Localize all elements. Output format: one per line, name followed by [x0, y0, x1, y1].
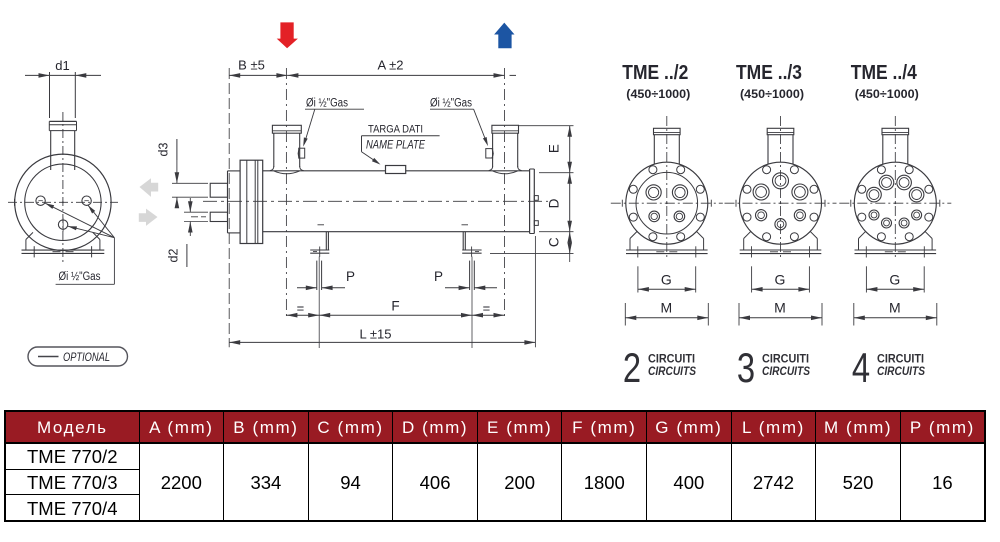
svg-text:P: P: [346, 269, 355, 284]
svg-text:Øi ½"Gas: Øi ½"Gas: [59, 271, 101, 283]
svg-text:G: G: [661, 272, 672, 288]
svg-text:TARGA DATI: TARGA DATI: [368, 124, 423, 136]
svg-text:A ±2: A ±2: [378, 58, 404, 73]
svg-text:=: =: [297, 301, 305, 316]
svg-text:TME ../2: TME ../2: [622, 62, 688, 84]
svg-text:(450÷1000): (450÷1000): [855, 87, 919, 101]
svg-text:TME ../3: TME ../3: [736, 62, 802, 84]
svg-text:(450÷1000): (450÷1000): [626, 87, 690, 101]
svg-text:=: =: [483, 301, 491, 316]
svg-text:P: P: [434, 269, 443, 284]
svg-text:D: D: [547, 198, 562, 208]
svg-text:G: G: [775, 272, 786, 288]
svg-text:CIRCUITI: CIRCUITI: [648, 354, 695, 366]
svg-text:d3: d3: [157, 143, 171, 157]
svg-text:TME ../4: TME ../4: [851, 62, 918, 84]
svg-text:F: F: [391, 299, 399, 314]
svg-text:(450÷1000): (450÷1000): [740, 87, 804, 101]
svg-text:E: E: [547, 144, 562, 153]
svg-text:CIRCUITS: CIRCUITS: [648, 366, 696, 378]
svg-text:2: 2: [623, 344, 641, 391]
svg-text:CIRCUITS: CIRCUITS: [762, 366, 810, 378]
svg-text:C: C: [547, 237, 562, 247]
svg-text:B ±5: B ±5: [238, 58, 265, 73]
svg-text:NAME PLATE: NAME PLATE: [366, 140, 425, 152]
svg-text:CIRCUITI: CIRCUITI: [877, 354, 924, 366]
svg-text:G: G: [889, 272, 900, 288]
svg-text:Øi ½"Gas: Øi ½"Gas: [306, 97, 348, 109]
svg-text:OPTIONAL: OPTIONAL: [63, 352, 110, 364]
svg-text:M: M: [774, 300, 786, 316]
svg-text:Øi ½"Gas: Øi ½"Gas: [430, 97, 472, 109]
svg-text:3: 3: [737, 344, 755, 391]
svg-text:M: M: [660, 300, 672, 316]
svg-text:d1: d1: [55, 58, 69, 73]
svg-text:CIRCUITI: CIRCUITI: [762, 354, 809, 366]
svg-text:M: M: [889, 300, 901, 316]
svg-text:d2: d2: [167, 249, 181, 263]
svg-text:L ±15: L ±15: [360, 327, 392, 342]
svg-text:4: 4: [852, 344, 870, 391]
svg-text:CIRCUITS: CIRCUITS: [877, 366, 925, 378]
